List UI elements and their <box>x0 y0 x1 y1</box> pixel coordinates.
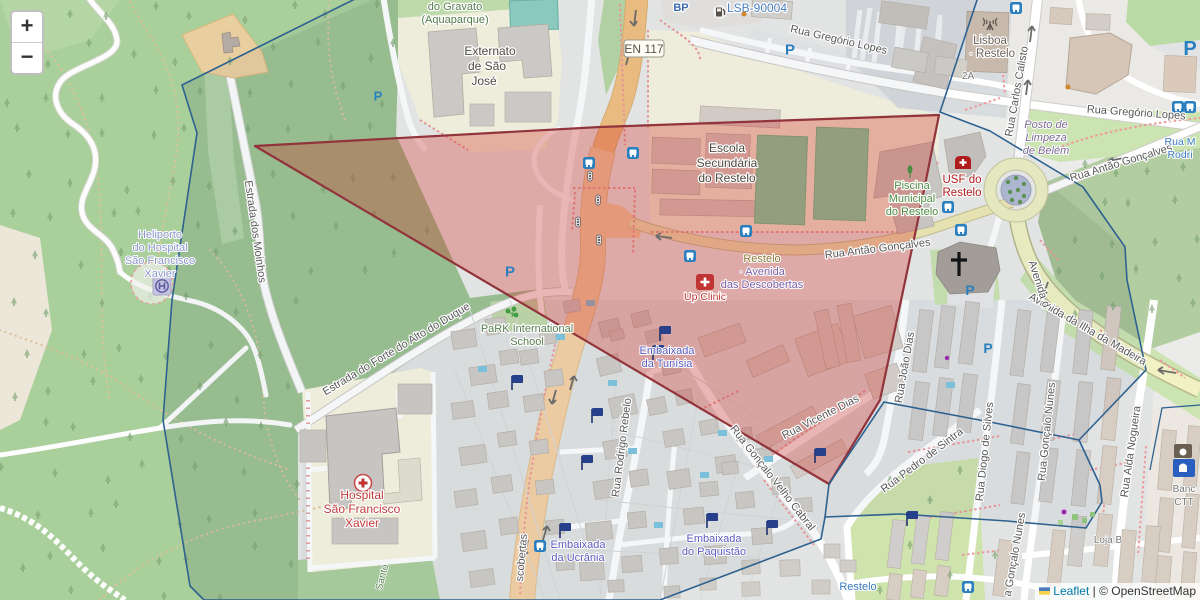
svg-text:da Ucrânia: da Ucrânia <box>551 552 605 564</box>
svg-text:José: José <box>471 74 497 88</box>
svg-text:do Paquistão: do Paquistão <box>682 546 746 558</box>
svg-text:Restelo: Restelo <box>743 253 780 265</box>
svg-text:Loja B: Loja B <box>1094 535 1123 546</box>
svg-text:do Restelo: do Restelo <box>698 171 756 185</box>
svg-text:Lisboa: Lisboa <box>973 35 1007 47</box>
svg-text:Restelo: Restelo <box>943 187 982 199</box>
svg-text:da Tunísia: da Tunísia <box>642 358 694 370</box>
svg-text:Escola: Escola <box>709 141 745 155</box>
svg-text:Limpeza: Limpeza <box>1025 132 1067 144</box>
svg-text:do Restelo: do Restelo <box>886 206 939 218</box>
svg-text:Municipal: Municipal <box>889 193 935 205</box>
svg-text:(Aquaparque): (Aquaparque) <box>421 14 488 26</box>
svg-text:São Francisco: São Francisco <box>324 502 401 516</box>
svg-text:Piscina: Piscina <box>894 180 930 192</box>
svg-text:Rodri: Rodri <box>1167 149 1192 161</box>
svg-text:P: P <box>965 282 974 298</box>
svg-text:Secundária: Secundária <box>697 156 758 170</box>
svg-text:Xavier: Xavier <box>144 268 176 280</box>
svg-text:das Descobertas: das Descobertas <box>721 279 804 291</box>
svg-text:Heliporto: Heliporto <box>138 229 182 241</box>
svg-text:São Francisco: São Francisco <box>125 255 195 267</box>
svg-text:2A: 2A <box>962 71 975 82</box>
svg-text:EN 117: EN 117 <box>624 42 663 56</box>
svg-text:Externato: Externato <box>464 44 516 58</box>
svg-text:BP: BP <box>673 2 688 14</box>
svg-text:P: P <box>785 41 795 58</box>
svg-text:CTT: CTT <box>1174 497 1193 508</box>
svg-text:· Avenida: · Avenida <box>739 266 786 278</box>
svg-text:PaRK International: PaRK International <box>481 323 573 335</box>
svg-text:P: P <box>374 89 383 104</box>
svg-text:Hospital: Hospital <box>340 488 383 502</box>
svg-text:· Restelo: · Restelo <box>969 48 1015 60</box>
svg-text:Xavier: Xavier <box>345 516 379 530</box>
svg-text:Embaixada: Embaixada <box>686 533 742 545</box>
svg-text:Up Clinic: Up Clinic <box>684 291 726 303</box>
svg-text:do Hospital: do Hospital <box>132 242 187 254</box>
svg-text:Posto de: Posto de <box>1024 119 1067 131</box>
svg-text:Restelo: Restelo <box>839 581 876 593</box>
svg-text:Embaixada: Embaixada <box>639 345 695 357</box>
svg-text:USF do: USF do <box>943 174 982 186</box>
svg-text:P: P <box>505 263 515 280</box>
svg-text:de São: de São <box>468 59 506 73</box>
svg-text:Embaixada: Embaixada <box>550 539 606 551</box>
svg-text:de Belém: de Belém <box>1023 145 1069 157</box>
svg-text:LSB-90004: LSB-90004 <box>727 1 787 15</box>
svg-text:do Gravato: do Gravato <box>428 1 482 13</box>
svg-text:Banc: Banc <box>1173 484 1196 495</box>
svg-text:P: P <box>983 340 992 356</box>
svg-text:Rua M: Rua M <box>1165 136 1196 148</box>
svg-text:School: School <box>510 336 544 348</box>
svg-text:P: P <box>1183 38 1196 60</box>
